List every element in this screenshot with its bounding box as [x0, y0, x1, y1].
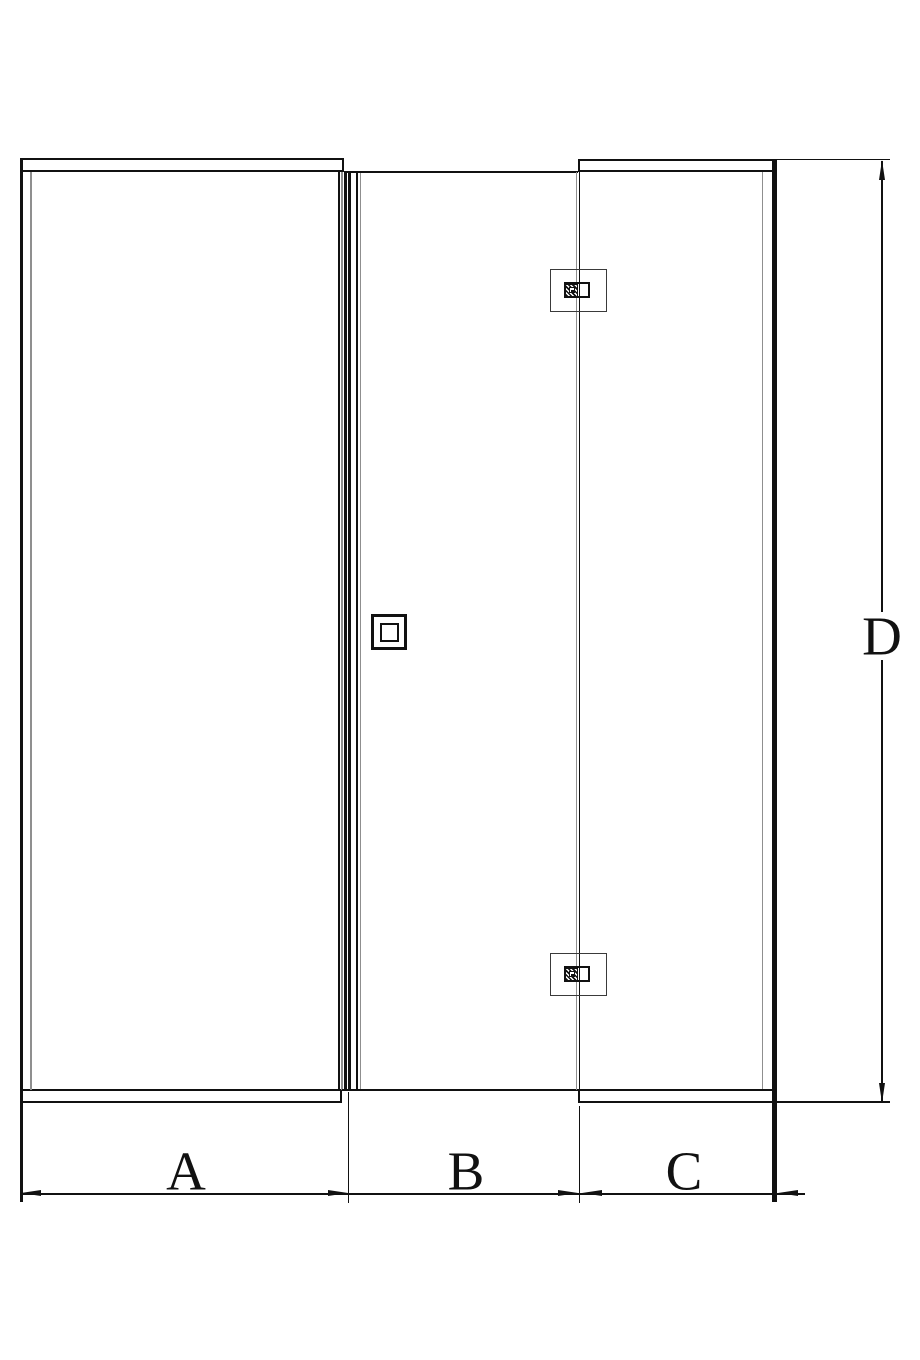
door-left-edge	[356, 172, 358, 1090]
drawing-canvas: A B C D	[0, 0, 920, 1360]
mullion-profile-line-1	[344, 172, 347, 1090]
right-panel-glass-edge	[762, 172, 764, 1089]
arrowhead-d-bottom	[879, 1083, 885, 1103]
dimension-label-d: D	[862, 609, 902, 664]
left-panel-top-rail	[20, 158, 344, 172]
extension-line-ab	[348, 1092, 349, 1203]
dimension-label-a: A	[166, 1144, 206, 1199]
door-knob-inner	[380, 623, 399, 642]
right-panel-top-rail	[578, 159, 777, 172]
arrowhead-b-right	[558, 1190, 578, 1196]
door-bottom-edge	[342, 1089, 578, 1091]
arrowhead-a-right	[328, 1190, 348, 1196]
door-left-glass-edge	[360, 172, 362, 1090]
extension-line-d-bottom	[777, 1101, 890, 1103]
dimension-label-c: C	[666, 1144, 703, 1199]
extension-line-d-top	[777, 159, 890, 161]
arrowhead-c-right	[778, 1190, 798, 1196]
left-panel-glass-edge-right	[338, 172, 340, 1090]
left-panel-wall-edge	[20, 158, 23, 1202]
arrowhead-d-top	[879, 160, 885, 180]
mullion-profile-line-2	[348, 172, 351, 1090]
hinge-icon-bottom	[550, 953, 607, 996]
dimension-line-d-lower	[881, 660, 883, 1103]
door-knob-icon	[371, 614, 407, 650]
mullion-glass-line	[341, 172, 343, 1090]
hinge-pin	[571, 290, 574, 293]
right-panel-wall-profile	[772, 159, 777, 1202]
extension-line-bc	[579, 1106, 580, 1203]
dimension-label-b: B	[448, 1144, 485, 1199]
hinge-pin	[571, 974, 574, 977]
right-panel-bottom-rail	[578, 1089, 777, 1103]
arrowhead-a-left	[21, 1190, 41, 1196]
door-top-edge	[344, 171, 578, 173]
left-panel-glass-edge-left	[30, 172, 32, 1090]
hinge-icon-top	[550, 269, 607, 312]
arrowhead-c-left	[582, 1190, 602, 1196]
left-panel-bottom-rail	[20, 1089, 342, 1103]
dimension-line-d-upper	[881, 161, 883, 612]
